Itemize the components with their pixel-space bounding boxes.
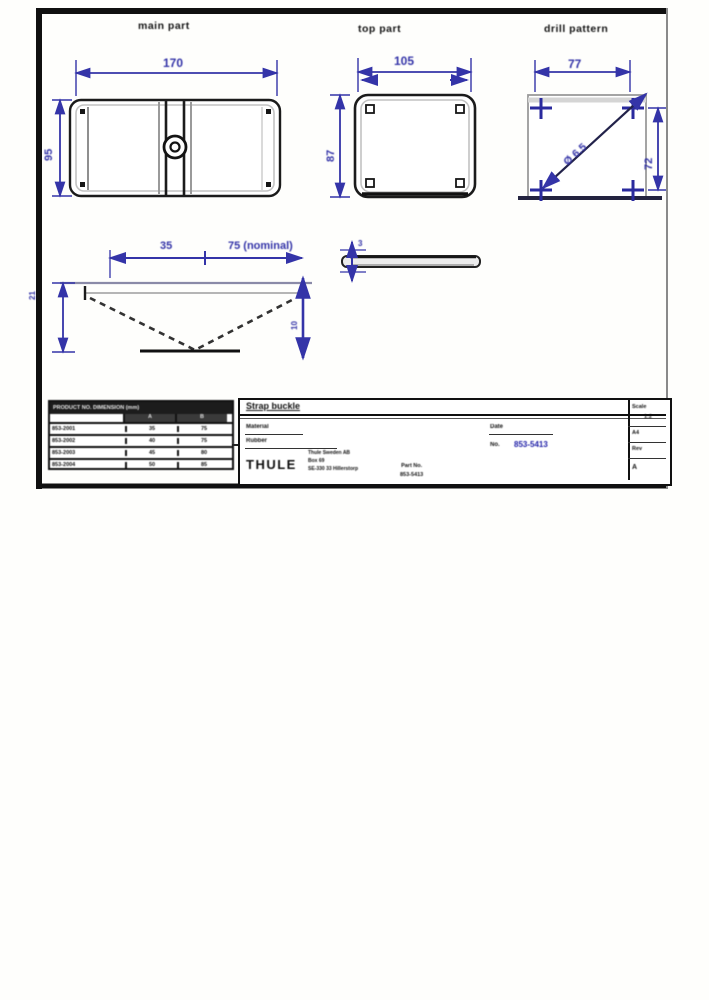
- table-row: 853-2004 50 85: [50, 460, 232, 470]
- view-top-part: [330, 58, 475, 197]
- parts-table-subheader: A B: [50, 414, 232, 424]
- rev-value: A: [632, 464, 637, 471]
- dim-profile-a: 35: [160, 241, 172, 252]
- view-profile: [52, 250, 312, 358]
- table-row: 853-2003 45 80: [50, 448, 232, 460]
- company-address: Thule Sweden AB Box 69 SE-330 33 Hillers…: [308, 450, 358, 473]
- dim-drill-width: 77: [568, 58, 581, 70]
- dim-main-height: 95: [44, 149, 55, 161]
- parts-table-col-b: B: [175, 414, 227, 422]
- dim-profile-b: 75 (nominal): [228, 241, 293, 252]
- view-main-part: [52, 60, 280, 196]
- dim-top-width: 105: [394, 55, 414, 67]
- dim-profile-drop: 10: [291, 321, 299, 330]
- dim-profile-height: 21: [29, 291, 37, 300]
- view-drill-pattern: [518, 60, 666, 201]
- dim-drill-height: 72: [644, 158, 655, 170]
- dim-top-height: 87: [326, 150, 337, 162]
- material-label: Material: [246, 424, 269, 430]
- scale-label: Scale: [632, 404, 646, 410]
- scale-value: 1:2: [644, 414, 652, 420]
- view-label-main-part: main part: [138, 21, 190, 32]
- drawing-title: Strap buckle: [246, 401, 300, 411]
- view-label-top-part: top part: [358, 24, 401, 35]
- drawing-number: 853-5413: [514, 440, 548, 449]
- part-number-block: Part No. 853-5413: [400, 462, 423, 480]
- dim-main-width: 170: [163, 57, 183, 69]
- drawing-page: main part top part drill pattern 170 95 …: [0, 0, 709, 1000]
- rev-label: Rev: [632, 446, 642, 452]
- drawing-no-label: No.: [490, 442, 500, 448]
- table-row: 853-2002 40 75: [50, 436, 232, 448]
- title-block-separator: [628, 400, 630, 480]
- drawing-sheet: main part top part drill pattern 170 95 …: [0, 0, 709, 500]
- date-label: Date: [490, 424, 503, 430]
- title-divider: [240, 414, 666, 416]
- material-value: Rubber: [246, 438, 267, 444]
- view-label-drill-pattern: drill pattern: [544, 24, 608, 35]
- sheet-format: A4: [632, 430, 639, 436]
- parts-table: PRODUCT NO. DIMENSION (mm) A B 853-2001 …: [48, 400, 234, 470]
- parts-table-header: PRODUCT NO. DIMENSION (mm): [50, 402, 232, 414]
- title-block: Strap buckle Material Rubber Date No. 85…: [238, 398, 672, 486]
- parts-table-header-text: PRODUCT NO. DIMENSION (mm): [50, 405, 142, 411]
- thule-logo: THULE: [246, 457, 297, 472]
- dim-strap-thickness: 3: [358, 240, 362, 248]
- table-row: 853-2001 35 75: [50, 424, 232, 436]
- parts-table-col-a: A: [123, 414, 175, 422]
